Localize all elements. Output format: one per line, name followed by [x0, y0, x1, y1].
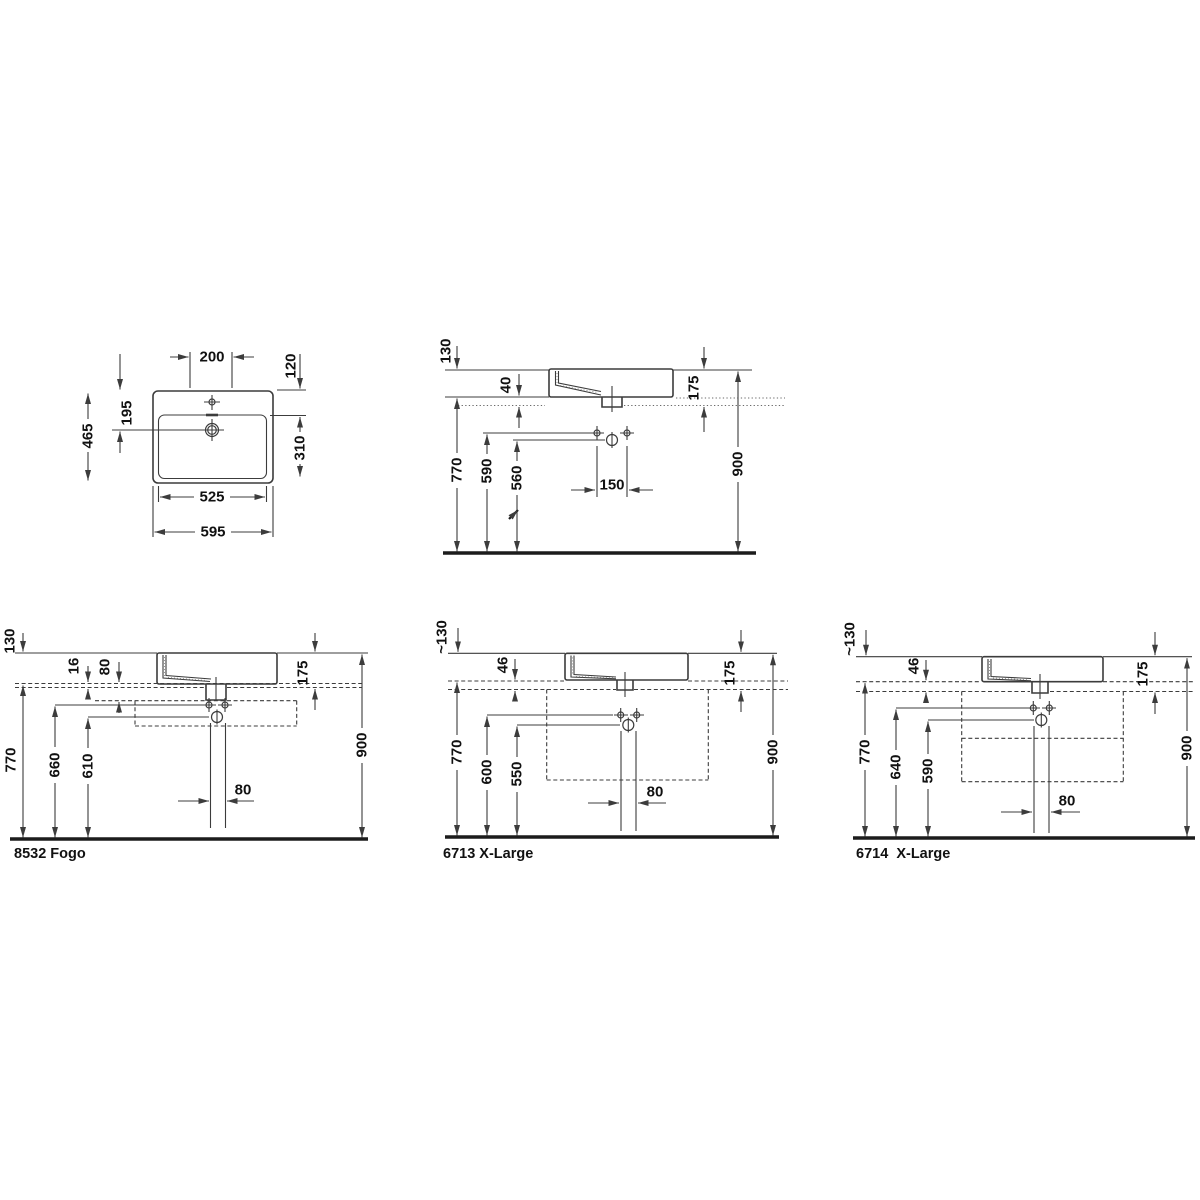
dim-pipe-offset: 80: [1059, 793, 1076, 810]
dim-rim-to-outlet: 175: [722, 660, 739, 685]
x6714-console-drawing: ~130 46 175 770 640 590 80 900 6714 X-La…: [842, 622, 1196, 862]
dim-supply-height: 590: [479, 458, 496, 483]
connection-centerlines: [1026, 701, 1056, 728]
dimension-arrows: [88, 354, 300, 532]
side-elevation-drawing: 130 40 175 770 590 560 150 900: [438, 338, 786, 553]
dim-rim-to-outlet: 175: [1135, 661, 1152, 686]
dim-pipe-offset: 80: [235, 782, 252, 799]
dim-bowl-depth: 310: [292, 435, 309, 460]
dim-plate-thickness: 16: [66, 658, 83, 675]
basin-profile: [549, 369, 673, 397]
dim-basin-height: 130: [438, 338, 455, 363]
basin-interior: [988, 659, 1031, 681]
dim-recess-depth: 80: [97, 659, 114, 676]
dim-waste-height: 560: [509, 465, 526, 490]
dim-basin-height: ~130: [842, 622, 859, 656]
dim-counter-thickness: 40: [498, 377, 515, 394]
dim-floor-to-rim: 900: [730, 451, 747, 476]
dim-bowl-width: 525: [199, 489, 224, 506]
product-label-6713: 6713 X-Large: [443, 846, 533, 862]
dim-plate-thickness: 46: [495, 657, 512, 674]
dim-pipe-offset: 80: [647, 784, 664, 801]
dim-waste-height: 590: [920, 758, 937, 783]
basin-interior: [556, 371, 602, 395]
basin-interior: [163, 655, 211, 682]
x6713-console-drawing: ~130 46 175 770 600 550 80 900 6713 X-La…: [434, 620, 789, 862]
dim-basin-height: ~130: [434, 620, 451, 654]
dim-floor-to-counter: 770: [3, 747, 20, 772]
furniture-box: [547, 690, 709, 781]
dim-floor-to-rim: 900: [354, 732, 371, 757]
dim-overall-depth: 465: [80, 423, 97, 448]
plan-view-drawing: 200 120 195 465 310 525 595: [80, 349, 309, 541]
dim-overall-width: 595: [200, 524, 225, 541]
basin-profile: [565, 653, 688, 680]
fogo-console-drawing: 130 16 80 175 770 660 610 80 900 8532 Fo…: [2, 628, 371, 862]
washbasin-dimension-drawing: 200 120 195 465 310 525 595: [0, 0, 1200, 1200]
dim-basin-height: 130: [2, 628, 19, 653]
technical-drawing-sheet: 200 120 195 465 310 525 595: [0, 0, 1200, 1200]
dim-supply-height: 640: [888, 754, 905, 779]
dim-floor-to-rim: 900: [765, 739, 782, 764]
connection-centerlines: [590, 426, 634, 448]
product-label-fogo: 8532 Fogo: [14, 846, 86, 862]
dim-supply-spacing: 150: [599, 477, 624, 494]
product-label-6714: 6714 X-Large: [856, 846, 950, 862]
drain-pipes: [211, 723, 226, 828]
dim-waste-height: 610: [80, 753, 97, 778]
extension-lines: [153, 352, 306, 537]
dim-waste-height: 550: [509, 761, 526, 786]
dim-plate-thickness: 46: [906, 658, 923, 675]
dim-supply-height: 600: [479, 759, 496, 784]
dim-floor-to-rim: 900: [1179, 735, 1196, 760]
connection-centerlines: [202, 698, 232, 725]
dim-rim-to-outlet: 175: [295, 660, 312, 685]
basin-profile: [982, 657, 1103, 682]
dim-floor-to-counter: 770: [449, 739, 466, 764]
furniture-box: [962, 692, 1124, 782]
dim-floor-to-counter: 770: [857, 739, 874, 764]
dim-edge-to-drain: 195: [119, 400, 136, 425]
basin-interior: [571, 656, 616, 679]
drain-pipes: [621, 731, 636, 831]
dim-floor-to-counter: 770: [449, 457, 466, 482]
dim-edge-to-bowl: 120: [283, 353, 300, 378]
drain-pipes: [1034, 726, 1049, 833]
dim-faucet-spacing: 200: [199, 349, 224, 366]
dim-supply-height: 660: [47, 752, 64, 777]
dim-rim-to-outlet: 175: [686, 375, 703, 400]
